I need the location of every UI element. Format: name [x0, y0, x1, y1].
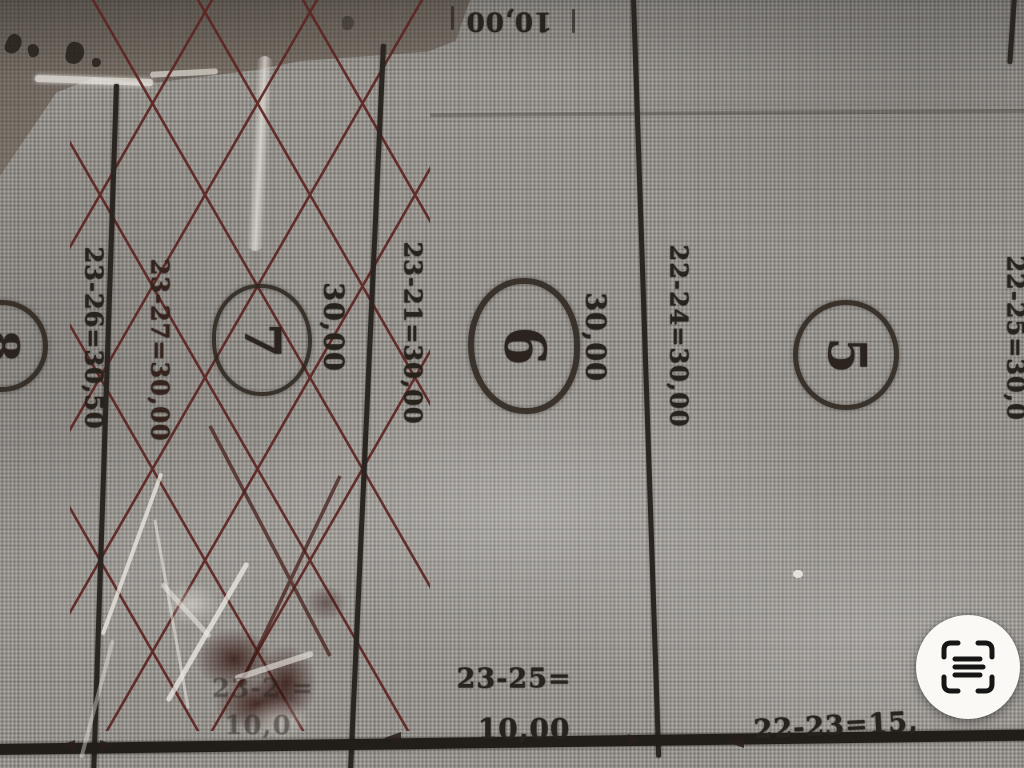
lot-6-digit: 6	[491, 327, 557, 366]
lot-8-digit: 8	[0, 330, 29, 362]
bottom-dimension-value-center: 10,00	[478, 713, 571, 746]
lot-5-digit: 5	[816, 337, 877, 373]
lot-number-6: 6	[468, 278, 580, 414]
dimension-arrow-right	[628, 734, 645, 746]
dimension-arrow-right	[100, 740, 117, 752]
bottom-dimension-label-center: 23-25=	[457, 664, 572, 695]
boundary-label-left-inner: 23-27=30,00	[146, 258, 175, 441]
lot-number-7: 7	[212, 284, 312, 396]
dimension-tick	[451, 6, 454, 30]
right-edge-line	[1007, 0, 1017, 64]
lot-7-width-label: 30,00	[318, 282, 349, 372]
boundary-label-between-6-5: 22-24=30,00	[665, 244, 694, 427]
scan-button[interactable]	[916, 615, 1020, 719]
boundary-label-right-edge: 22-25=30,0	[1002, 255, 1024, 420]
ink-smudge	[2, 32, 24, 56]
cadastral-map-photo: 8 7 6 5 30,00 30,00 23-26=30,50 23-27=30…	[0, 0, 1024, 768]
top-dimension-label: 10,00	[466, 6, 552, 36]
dimension-arrow-left	[58, 740, 75, 752]
lot-number-5: 5	[793, 300, 899, 410]
lot-6-width-label: 30,00	[580, 292, 611, 382]
dimension-arrow-left	[384, 732, 401, 744]
street-line-top-faint	[430, 109, 1024, 117]
ink-smudge	[793, 570, 803, 578]
boundary-label-left-outer: 23-26=30,50	[80, 246, 109, 429]
lot-number-8: 8	[0, 300, 48, 392]
ink-smudge	[27, 43, 41, 58]
dimension-arrow-left	[727, 736, 744, 748]
bottom-dimension-label-left: 23-2 =	[212, 674, 314, 704]
boundary-label-between-7-6: 23-21=30,00	[399, 241, 428, 424]
bottom-dimension-value-left: 10,0	[224, 711, 291, 741]
lot-7-digit: 7	[232, 323, 291, 358]
text-scan-icon	[938, 637, 998, 697]
dimension-tick	[572, 9, 575, 33]
